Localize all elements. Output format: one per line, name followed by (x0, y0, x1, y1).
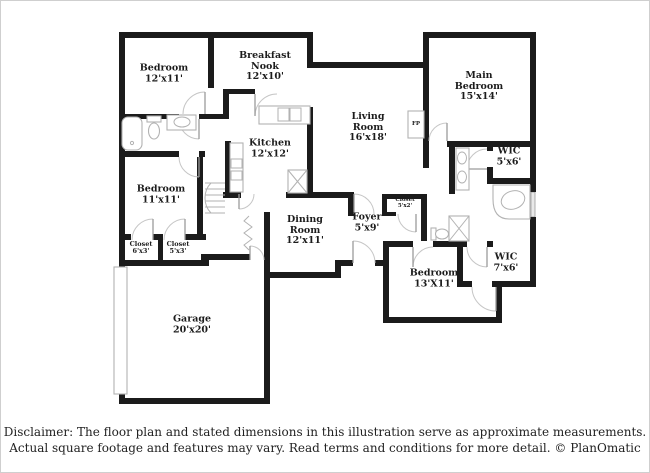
room-dims: 12'x11' (283, 236, 327, 247)
room-dims: 5'x2' (390, 204, 420, 210)
room-dims: 5'x6' (489, 157, 529, 168)
room-label-wic-bottom: WIC 7'x6' (486, 252, 526, 273)
garage-door (114, 267, 127, 394)
room-name: Living Room (346, 112, 390, 133)
fireplace-abbr: FP (408, 122, 424, 128)
room-name: Main Bedroom (453, 71, 505, 92)
room-label-garage: Garage 20'x20' (162, 314, 222, 335)
floor-plan-page: Bedroom 12'x11' Breakfast Nook 12'x10' M… (0, 0, 650, 473)
room-label-living-room: Living Room 16'x18' (346, 112, 390, 144)
room-dims: 5'x3' (160, 248, 196, 255)
room-dims: 15'x14' (453, 92, 505, 103)
room-dims: 5'x9' (345, 223, 389, 234)
disclaimer: Disclaimer: The floor plan and stated di… (1, 425, 649, 456)
room-label-bedroom-bottom: Bedroom 13'X11' (404, 268, 464, 289)
room-label-closet-foyer: Closet 5'x2' (390, 198, 420, 210)
room-dims: 12'x11' (134, 74, 194, 85)
accordion-door (244, 216, 252, 250)
room-name: Dining Room (283, 215, 327, 236)
room-label-bedroom-top-left: Bedroom 12'x11' (134, 63, 194, 84)
room-label-dining-room: Dining Room 12'x11' (283, 215, 327, 247)
room-label-closet-2: Closet 5'x3' (160, 241, 196, 255)
room-label-main-bedroom: Main Bedroom 15'x14' (453, 71, 505, 103)
room-dims: 12'x10' (236, 72, 294, 83)
room-label-foyer: Foyer 5'x9' (345, 212, 389, 233)
room-name: Breakfast Nook (236, 51, 294, 72)
room-dims: 20'x20' (162, 325, 222, 336)
fireplace-label: FP (408, 122, 424, 128)
toilet-tank-icon (147, 116, 161, 122)
room-dims: 6'x3' (123, 248, 159, 255)
room-label-breakfast-nook: Breakfast Nook 12'x10' (236, 51, 294, 83)
stairs-icon (205, 183, 225, 213)
disclaimer-line-1: Disclaimer: The floor plan and stated di… (1, 425, 649, 441)
disclaimer-line-2: Actual square footage and features may v… (1, 441, 649, 457)
room-label-bedroom-left: Bedroom 11'x11' (131, 184, 191, 205)
room-dims: 16'x18' (346, 133, 390, 144)
room-label-closet-1: Closet 6'x3' (123, 241, 159, 255)
room-dims: 7'x6' (486, 263, 526, 274)
toilet-bowl-icon (149, 123, 160, 139)
room-dims: 13'X11' (404, 279, 464, 290)
room-dims: 11'x11' (131, 195, 191, 206)
room-label-wic-main: WIC 5'x6' (489, 146, 529, 167)
toilet-bowl-icon-2 (436, 229, 449, 239)
room-label-kitchen: Kitchen 12'x12' (240, 138, 300, 159)
room-dims: 12'x12' (240, 149, 300, 160)
